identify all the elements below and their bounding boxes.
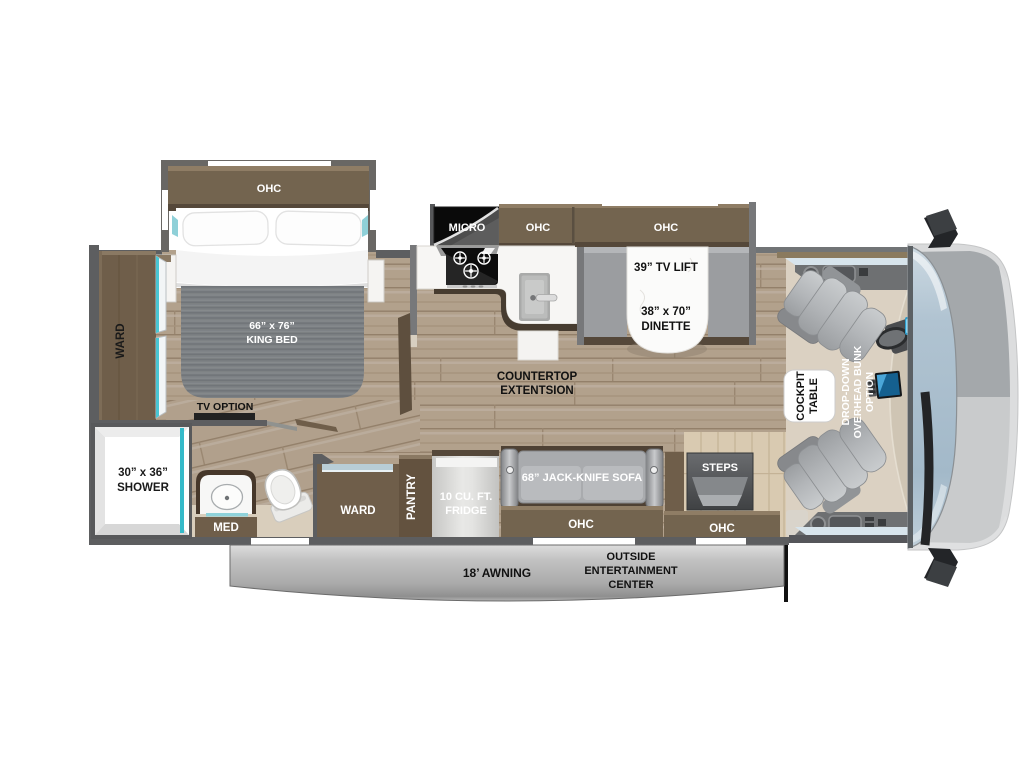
svg-text:OHC: OHC — [709, 523, 735, 535]
svg-text:DROP-DOWN: DROP-DOWN — [840, 358, 852, 425]
svg-text:30” x 36”: 30” x 36” — [118, 467, 168, 479]
svg-text:OHC: OHC — [526, 222, 551, 234]
svg-text:MICRO: MICRO — [449, 222, 486, 234]
svg-text:66” x 76”: 66” x 76” — [249, 320, 295, 332]
svg-text:SHOWER: SHOWER — [117, 482, 169, 494]
svg-text:10 CU. FT.: 10 CU. FT. — [440, 491, 493, 503]
svg-text:TV OPTION: TV OPTION — [197, 401, 254, 413]
svg-text:DINETTE: DINETTE — [641, 321, 691, 333]
svg-text:18’ AWNING: 18’ AWNING — [463, 566, 531, 580]
svg-text:OHC: OHC — [257, 183, 282, 195]
svg-text:EXTENTSION: EXTENTSION — [500, 385, 573, 397]
svg-text:MED: MED — [213, 522, 239, 534]
svg-text:KING BED: KING BED — [246, 334, 298, 346]
svg-text:PANTRY: PANTRY — [406, 474, 418, 520]
svg-text:68” JACK-KNIFE SOFA: 68” JACK-KNIFE SOFA — [522, 472, 642, 484]
svg-text:STEPS: STEPS — [702, 462, 738, 474]
svg-text:OUTSIDE: OUTSIDE — [607, 551, 656, 563]
svg-text:ENTERTAINMENT: ENTERTAINMENT — [584, 565, 678, 577]
svg-text:FRIDGE: FRIDGE — [445, 505, 487, 517]
svg-text:OPTION: OPTION — [864, 372, 876, 412]
svg-text:OHC: OHC — [568, 519, 594, 531]
svg-text:38” x 70”: 38” x 70” — [641, 306, 691, 318]
svg-text:COUNTERTOP: COUNTERTOP — [497, 371, 578, 383]
svg-text:OVERHEAD BUNK: OVERHEAD BUNK — [852, 345, 864, 438]
svg-text:CENTER: CENTER — [608, 579, 653, 591]
svg-text:COCKPIT: COCKPIT — [795, 371, 807, 421]
svg-text:WARD: WARD — [340, 505, 375, 517]
svg-text:OHC: OHC — [654, 222, 679, 234]
svg-text:TABLE: TABLE — [808, 378, 820, 414]
svg-text:39” TV LIFT: 39” TV LIFT — [634, 262, 698, 274]
svg-text:WARD: WARD — [115, 323, 127, 358]
